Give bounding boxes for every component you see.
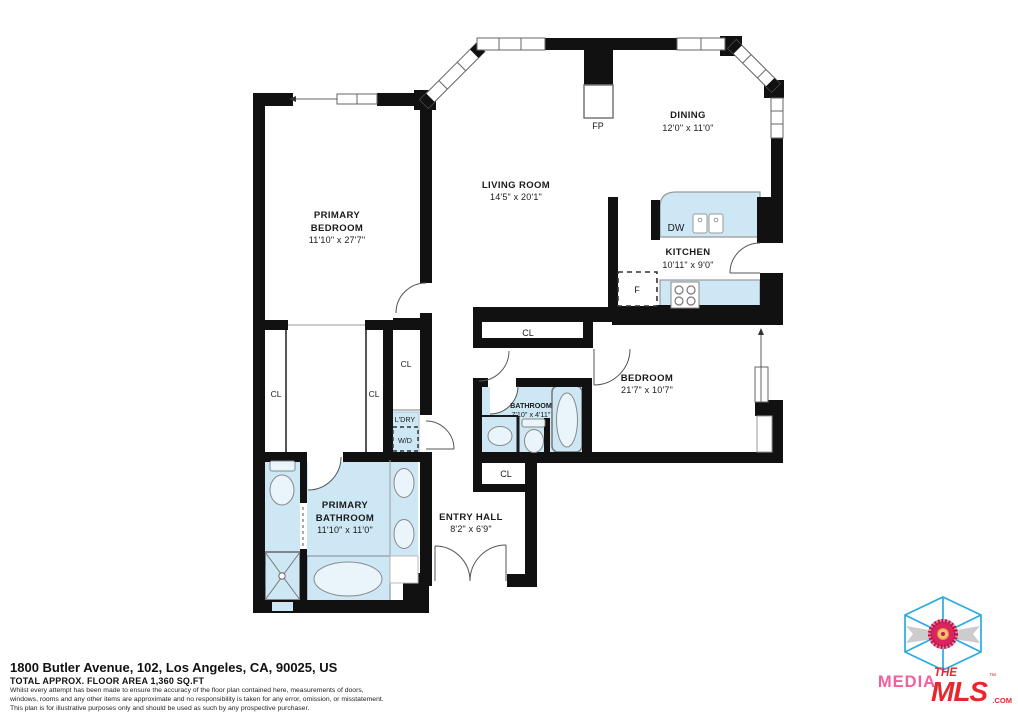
window-top-left	[337, 94, 377, 104]
entry-double-door-right	[470, 545, 506, 581]
floorplan-page: PRIMARY BEDROOM 11'10" x 27'7" LIVING RO…	[0, 0, 1018, 720]
door-hallway	[479, 351, 509, 381]
primary-bedroom-label2: BEDROOM	[311, 223, 363, 234]
fridge-label: F	[634, 285, 640, 295]
kitchen-dims: 10'11" x 9'0"	[662, 260, 713, 270]
entry-hall-dims: 8'2" x 6'9"	[450, 524, 492, 534]
living-room-label: LIVING ROOM	[482, 180, 550, 191]
logo-media-text: MEDIA	[878, 673, 936, 691]
bathroom-dims: 7'10" x 4'11"	[512, 410, 551, 419]
primary-bedroom-dims: 11'10" x 27'7"	[309, 235, 366, 245]
primary-sink-1	[394, 469, 414, 498]
shower-step	[272, 602, 293, 611]
door-primary-bedroom	[396, 283, 426, 313]
floor-area-line: TOTAL APPROX. FLOOR AREA 1,360 SQ.FT	[10, 676, 204, 686]
disclaimer-line-2: windows, rooms and any other items are a…	[10, 696, 384, 703]
primary-bath-cabinet	[390, 556, 418, 583]
fireplace-label: FP	[592, 121, 604, 131]
primary-sink-2	[394, 520, 414, 549]
disclaimer-line-1: Whilst every attempt has been made to en…	[10, 687, 364, 694]
bedroom-label: BEDROOM	[621, 373, 673, 384]
closet-entry-label: CL	[500, 469, 512, 479]
primary-bathroom-dims: 11'10" x 11'0"	[317, 525, 373, 535]
floorplan-svg: PRIMARY BEDROOM 11'10" x 27'7" LIVING RO…	[0, 0, 1018, 720]
primary-bedroom-label: PRIMARY	[314, 210, 361, 221]
kitchen-label: KITCHEN	[665, 247, 710, 258]
media-mls-logo: MEDIA THE MLS ™ .COM	[878, 597, 1012, 707]
closet-right-label: CL	[401, 359, 412, 369]
dining-dims: 12'0" x 11'0"	[662, 123, 713, 133]
fireplace-box	[584, 85, 613, 118]
window-bay-top-2	[677, 38, 725, 50]
bathroom-label: BATHROOM	[510, 401, 552, 410]
living-room-dims: 14'5" x 20'1"	[490, 192, 542, 202]
window-bay-right-diagonal	[728, 40, 780, 92]
bedroom-wall-notch	[757, 416, 772, 452]
entry-double-door-left	[435, 546, 470, 581]
primary-toilet	[270, 461, 295, 505]
primary-bathtub-basin	[314, 562, 382, 596]
bathtub-small-basin	[557, 393, 578, 447]
disclaimer-line-3: This plan is for illustrative purposes o…	[10, 705, 309, 712]
closet-front-lines	[286, 330, 366, 452]
logo-mls-text: MLS	[931, 676, 988, 707]
window-bedroom-right	[755, 367, 768, 402]
primary-bathroom-label2: BATHROOM	[316, 513, 374, 524]
washer-dryer-label: W/D	[398, 436, 412, 445]
logo-tm-text: ™	[989, 673, 996, 680]
logo-eye-icon	[928, 619, 958, 649]
dishwasher-label: DW	[668, 223, 685, 234]
door-laundry	[426, 421, 454, 449]
bathroom-sink	[488, 427, 512, 446]
entry-hall-label: ENTRY HALL	[439, 512, 503, 523]
closet-left-label: CL	[271, 389, 282, 399]
closet-middle-label: CL	[369, 389, 380, 399]
closet-upper-label: CL	[522, 328, 534, 338]
door-kitchen	[730, 243, 760, 273]
address-line: 1800 Butler Avenue, 102, Los Angeles, CA…	[10, 660, 337, 675]
logo-com-text: .COM	[992, 696, 1012, 705]
window-bay-left-diagonal	[420, 43, 485, 108]
primary-bathroom-label: PRIMARY	[322, 500, 369, 511]
laundry-label: L'DRY	[395, 415, 416, 424]
window-dining-right	[771, 98, 783, 138]
window-bay-top-1	[477, 38, 545, 50]
stove	[671, 282, 699, 308]
bedroom-dims: 21'7" x 10'7"	[621, 385, 673, 395]
dining-label: DINING	[670, 110, 706, 121]
